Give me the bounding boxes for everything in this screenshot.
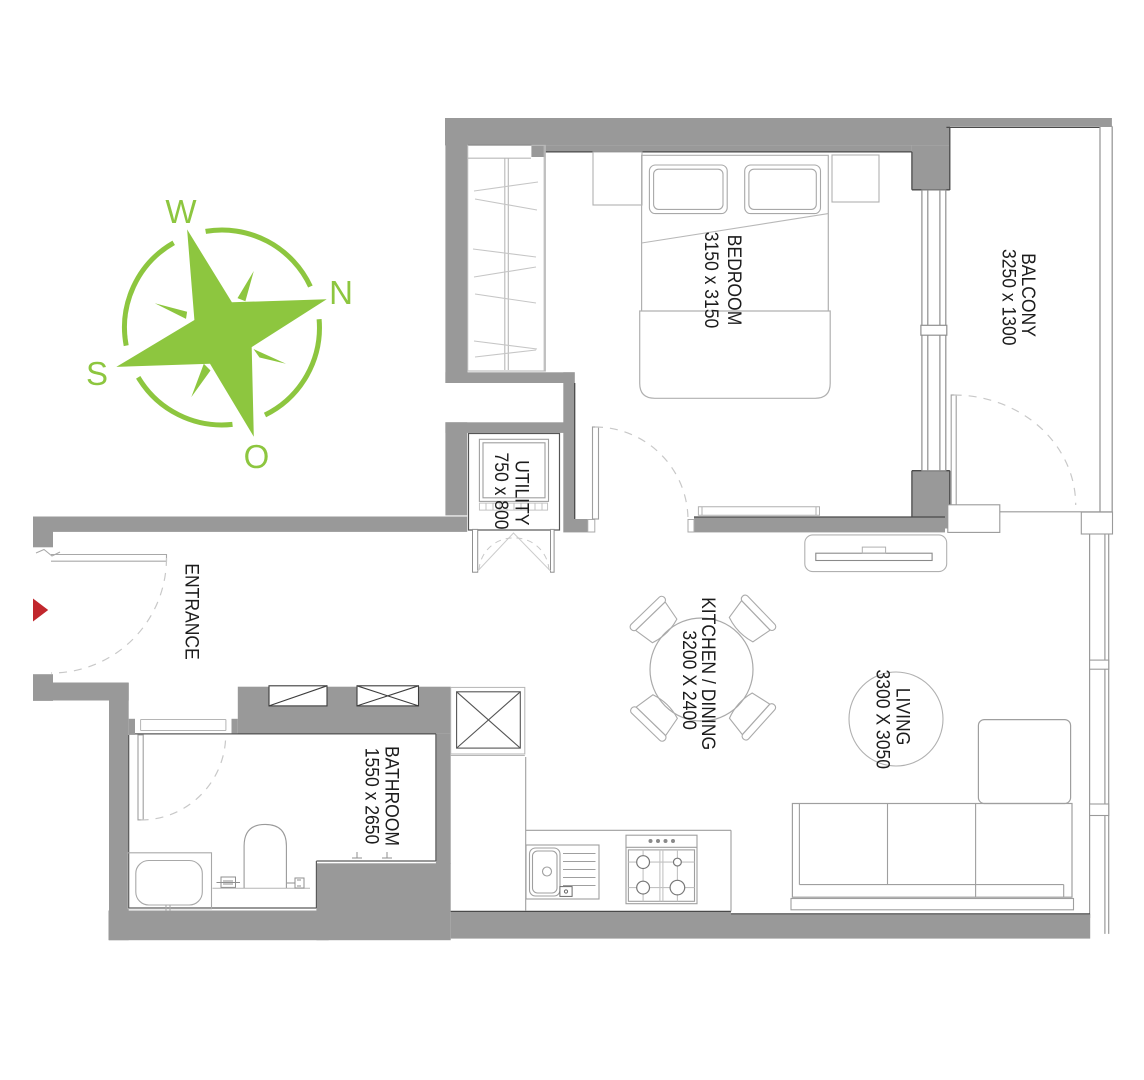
svg-text:S: S [86, 355, 108, 392]
svg-text:LIVING: LIVING [892, 688, 914, 746]
svg-text:N: N [329, 274, 353, 311]
svg-text:ENTRANCE: ENTRANCE [181, 563, 203, 660]
svg-text:3250 x 1300: 3250 x 1300 [998, 249, 1020, 346]
svg-text:BATHROOM: BATHROOM [381, 746, 403, 846]
svg-text:750 x 800: 750 x 800 [491, 452, 513, 529]
svg-text:3200 X 2400: 3200 X 2400 [679, 630, 701, 730]
svg-text:3150 x 3150: 3150 x 3150 [701, 232, 723, 329]
svg-text:O: O [244, 438, 270, 475]
svg-text:1550 x 2650: 1550 x 2650 [361, 748, 383, 845]
svg-text:UTILITY: UTILITY [511, 460, 533, 525]
svg-text:W: W [165, 193, 197, 230]
svg-text:3300 X 3050: 3300 X 3050 [872, 669, 894, 769]
svg-text:BEDROOM: BEDROOM [724, 235, 746, 326]
